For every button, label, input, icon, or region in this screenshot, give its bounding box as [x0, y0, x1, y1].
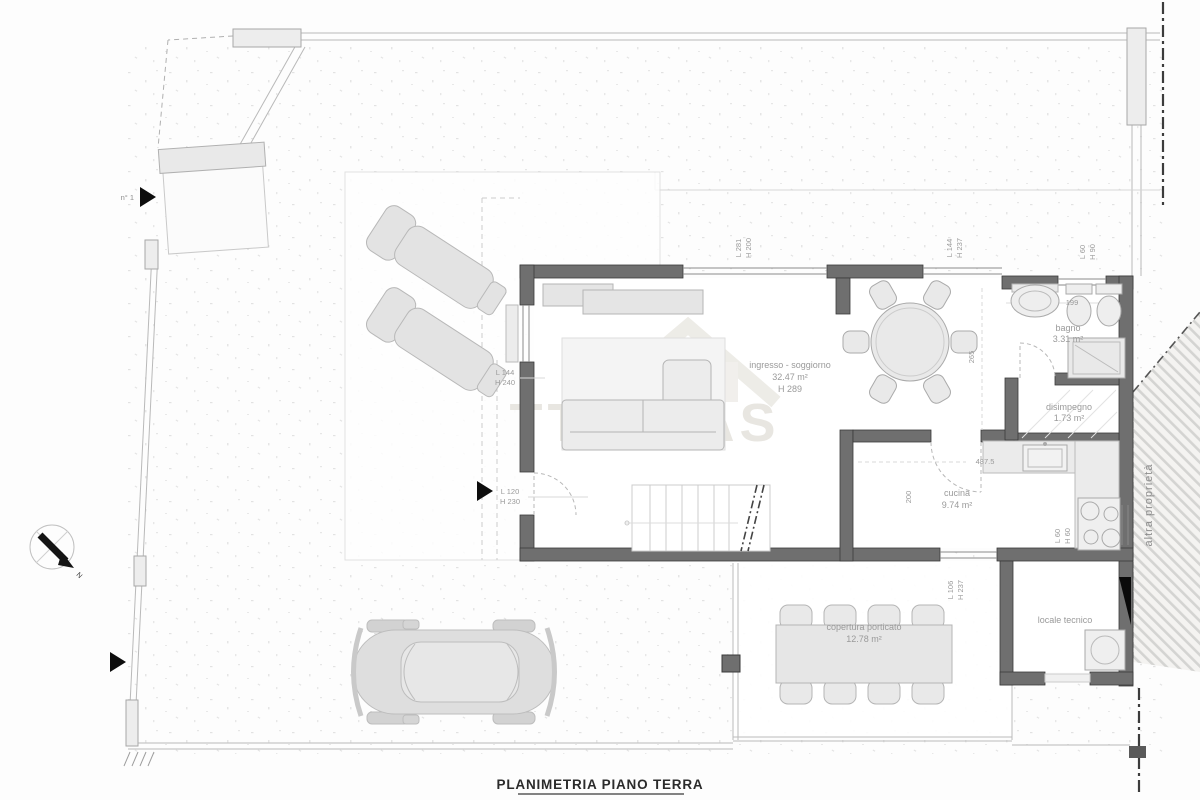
dim-w-bagno-l: L 60: [1078, 245, 1087, 259]
porch-chair-b4: [912, 680, 944, 704]
gate-pillar-top-right: [1127, 28, 1146, 125]
porch-chair-b1: [780, 680, 812, 704]
dim-w-cucina-h: H 60: [1063, 528, 1072, 544]
bidet-tank: [1096, 284, 1122, 294]
car-mirror-right: [403, 715, 419, 724]
compass: N: [30, 525, 83, 580]
label-porticato-area: 12.78 m²: [846, 634, 882, 644]
porch-chair-b3: [868, 680, 900, 704]
bath-sink: [1011, 285, 1059, 317]
label-porticato-name: copertura porticato: [826, 622, 901, 632]
stove: [1078, 498, 1120, 550]
dim-w-pranzo-h: H 237: [955, 238, 964, 258]
property-corner-mark: [1129, 746, 1146, 758]
gate-arrow-bottom: [110, 652, 126, 672]
label-bagno-area: 3.31 m²: [1053, 334, 1084, 344]
label-soggiorno-name: ingresso - soggiorno: [749, 360, 831, 370]
kitchen-faucet: [1043, 442, 1047, 446]
wall-cucina-left: [840, 430, 853, 561]
dim-w-cucina-l: L 60: [1053, 529, 1062, 543]
wall-top-left: [520, 265, 683, 278]
gate-pillar-top-left: [233, 29, 301, 47]
bidet-bowl: [1097, 296, 1121, 326]
floor-plan-drawing: TTO CAS: [0, 0, 1200, 800]
wall-locale-bottom-2: [1090, 672, 1133, 685]
dim-bagno-width: 199: [1066, 298, 1079, 307]
fence-pillar-3: [126, 700, 138, 746]
label-bagno-name: bagno: [1055, 323, 1080, 333]
pillar-dining: [836, 278, 850, 314]
locale-threshold: [1045, 674, 1090, 682]
dim-w-soggiorno-h: H 200: [744, 238, 753, 258]
label-soggiorno-height: H 289: [778, 384, 802, 394]
dining-table: [871, 303, 949, 381]
fence-pillar-1: [145, 240, 158, 269]
car: [353, 620, 555, 724]
porch-pillar: [722, 655, 740, 672]
tv-unit-right: [583, 290, 703, 314]
dim-entry-door-l: L 120: [501, 487, 520, 496]
label-cucina-name: cucina: [944, 488, 970, 498]
floor-plan-canvas: TTO CAS: [0, 0, 1200, 800]
fence-pillar-2: [134, 556, 146, 586]
label-soggiorno-area: 32.47 m²: [772, 372, 808, 382]
wall-left-1: [520, 265, 534, 305]
wall-cucina-top-1: [853, 430, 931, 442]
shed-outline: [163, 165, 268, 254]
wall-locale-bottom-1: [1000, 672, 1045, 685]
label-disimpegno-area: 1.73 m²: [1054, 413, 1085, 423]
stairs: [625, 485, 770, 551]
dim-cucina-depth: 200: [904, 491, 913, 504]
compass-north-label: N: [75, 571, 84, 580]
corner-ticks: [124, 752, 154, 766]
dim-w-soggiorno-l: L 281: [734, 239, 743, 258]
dim-porch-door-h: H 237: [956, 580, 965, 600]
car-mirror-left: [403, 620, 419, 629]
dining-chair-4: [843, 331, 869, 353]
wc-tank: [1066, 284, 1092, 294]
dim-w-bagno-h: H 90: [1088, 244, 1097, 260]
wall-locale-left: [1000, 561, 1013, 685]
boundary-dashed-top: [168, 36, 233, 40]
title-block: PLANIMETRIA PIANO TERRA: [497, 777, 704, 794]
porch-chair-b2: [824, 680, 856, 704]
dim-cucina-width: 487.5: [976, 457, 995, 466]
dim-w-pranzo-l: L 144: [945, 239, 954, 258]
dining-chair-1: [951, 331, 977, 353]
dim-w-left-h: H 240: [495, 378, 515, 387]
label-cucina-area: 9.74 m²: [942, 500, 973, 510]
wall-disimpegno-left: [1005, 378, 1018, 440]
neighbor-property-label: altra proprietà: [1143, 464, 1155, 547]
car-cabin: [401, 642, 519, 702]
label-disimpegno-name: disimpegno: [1046, 402, 1092, 412]
gate-number-label: n° 1: [121, 193, 134, 202]
dim-entry-door-h: H 230: [500, 497, 520, 506]
dim-pranzo-depth: 265: [967, 351, 976, 364]
dim-w-left-l: L 144: [496, 368, 515, 377]
wall-top-dining: [827, 265, 923, 278]
dim-porch-door-l: L 106: [946, 581, 955, 600]
window-left-sill: [506, 305, 518, 362]
shed: [158, 142, 271, 254]
plan-title: PLANIMETRIA PIANO TERRA: [497, 777, 704, 792]
label-locale-name: locale tecnico: [1038, 615, 1093, 625]
